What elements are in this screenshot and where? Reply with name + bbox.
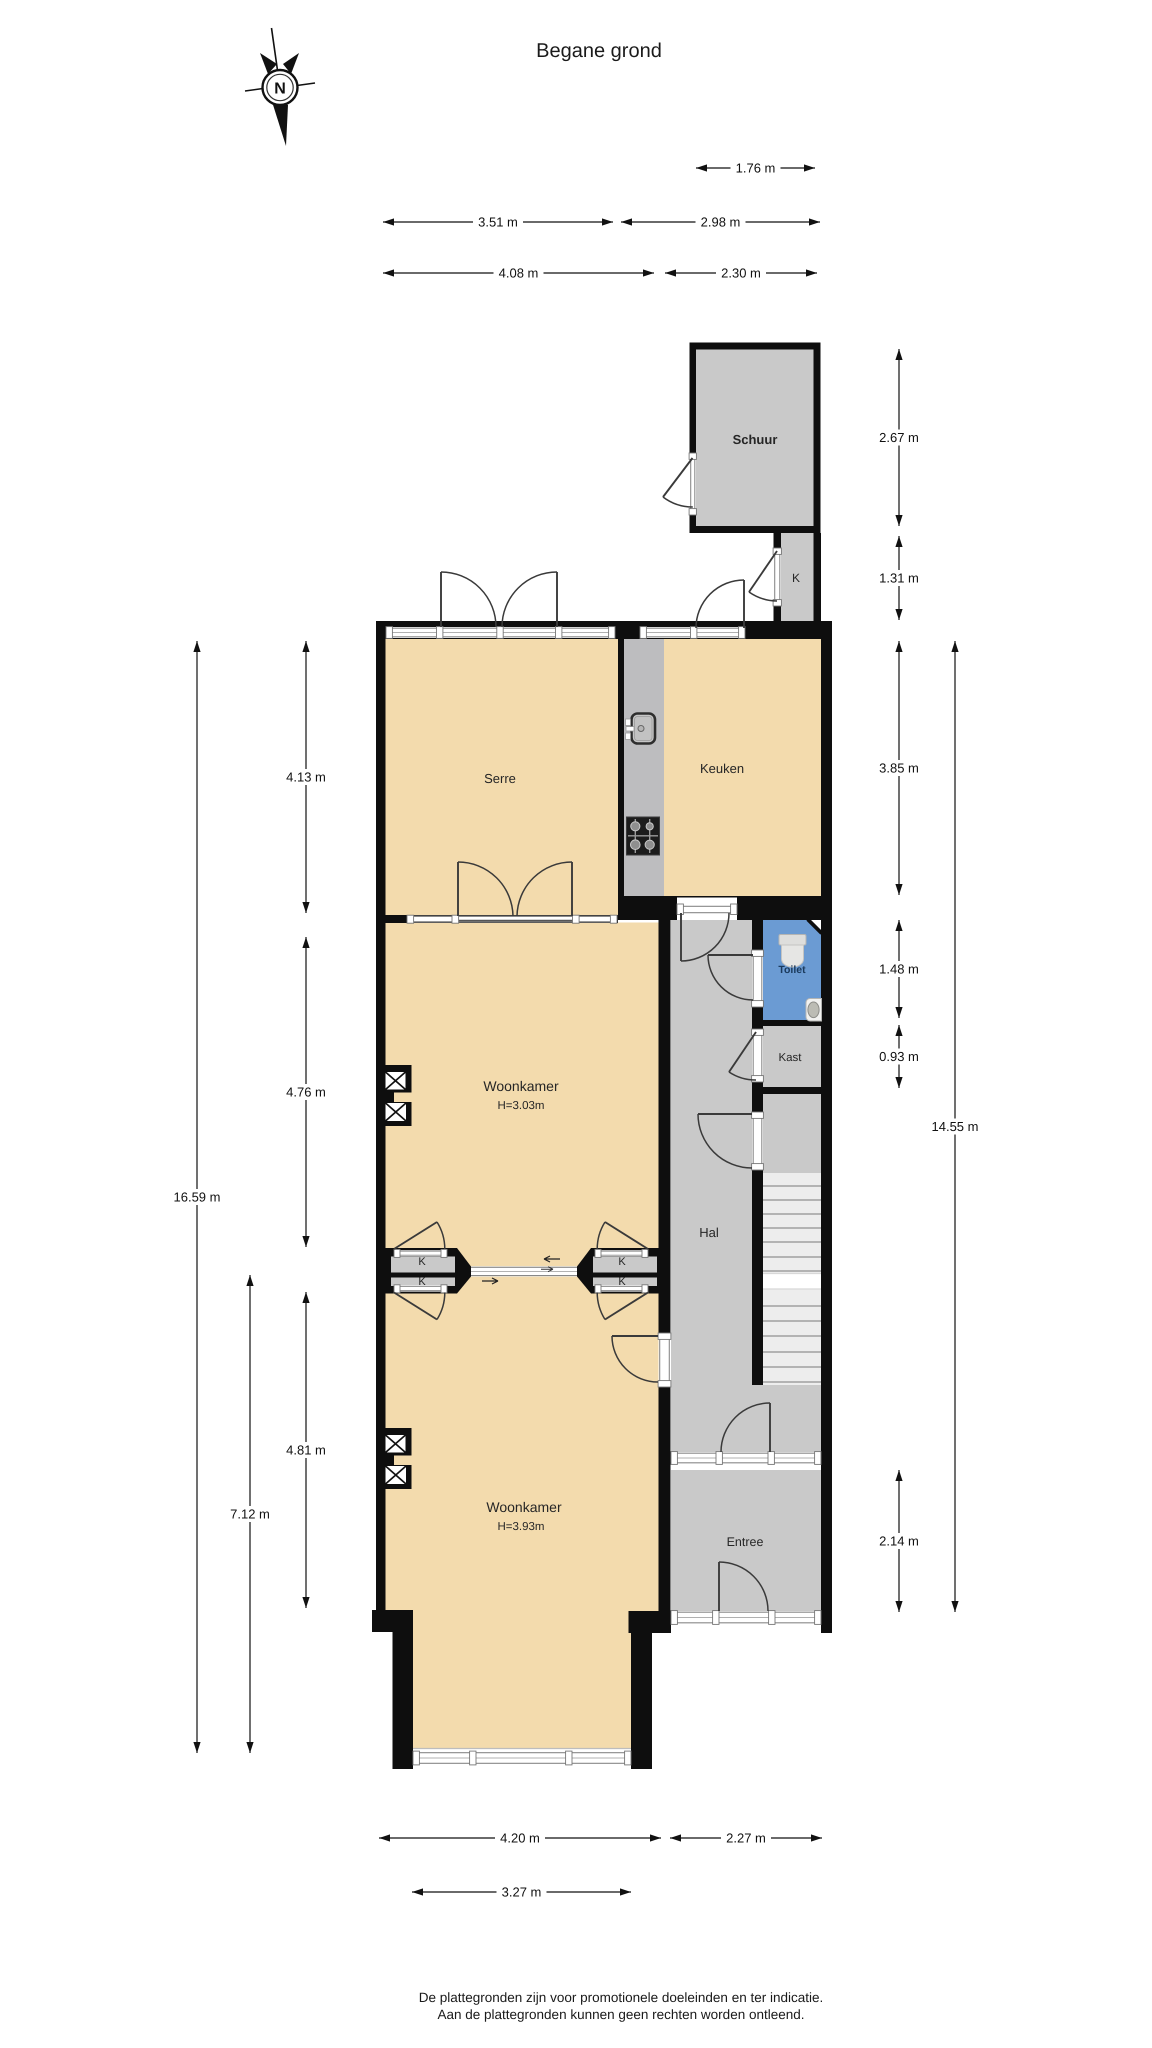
svg-text:H=3.93m: H=3.93m	[498, 1521, 545, 1533]
svg-text:3.85 m: 3.85 m	[879, 761, 919, 776]
svg-text:4.76 m: 4.76 m	[286, 1085, 326, 1100]
svg-text:3.27 m: 3.27 m	[502, 1885, 542, 1900]
svg-text:N: N	[274, 81, 286, 98]
svg-text:K: K	[618, 1256, 626, 1268]
svg-text:2.27 m: 2.27 m	[726, 1831, 766, 1846]
svg-text:H=3.03m: H=3.03m	[498, 1100, 545, 1112]
svg-text:Woonkamer: Woonkamer	[483, 1078, 559, 1094]
svg-text:Schuur: Schuur	[733, 432, 778, 447]
svg-text:4.81 m: 4.81 m	[286, 1443, 326, 1458]
svg-text:3.51 m: 3.51 m	[478, 215, 518, 230]
svg-text:2.98 m: 2.98 m	[701, 215, 741, 230]
svg-text:Toilet: Toilet	[778, 964, 806, 976]
svg-text:Serre: Serre	[484, 771, 516, 786]
svg-text:16.59 m: 16.59 m	[174, 1190, 221, 1205]
svg-text:4.13 m: 4.13 m	[286, 770, 326, 785]
svg-text:Kast: Kast	[778, 1052, 802, 1064]
svg-text:Aan de plattegronden kunnen ge: Aan de plattegronden kunnen geen rechten…	[437, 2007, 804, 2022]
svg-text:1.76 m: 1.76 m	[736, 161, 776, 176]
svg-text:1.48 m: 1.48 m	[879, 962, 919, 977]
svg-text:Woonkamer: Woonkamer	[486, 1499, 562, 1515]
svg-text:14.55 m: 14.55 m	[932, 1119, 979, 1134]
svg-text:Keuken: Keuken	[700, 761, 744, 776]
svg-text:De plattegronden zijn voor pro: De plattegronden zijn voor promotionele …	[419, 1990, 824, 2005]
svg-text:Hal: Hal	[699, 1225, 719, 1240]
svg-text:K: K	[418, 1256, 426, 1268]
svg-text:2.67 m: 2.67 m	[879, 430, 919, 445]
svg-text:1.31 m: 1.31 m	[879, 571, 919, 586]
svg-text:Begane grond: Begane grond	[536, 40, 662, 62]
svg-text:2.14 m: 2.14 m	[879, 1534, 919, 1549]
svg-text:4.08 m: 4.08 m	[499, 266, 539, 281]
svg-text:K: K	[418, 1276, 426, 1288]
svg-text:7.12 m: 7.12 m	[230, 1507, 270, 1522]
svg-text:Entree: Entree	[727, 1535, 764, 1549]
svg-text:0.93 m: 0.93 m	[879, 1049, 919, 1064]
svg-text:K: K	[618, 1276, 626, 1288]
svg-text:K: K	[792, 571, 800, 585]
svg-text:2.30 m: 2.30 m	[721, 266, 761, 281]
svg-text:4.20 m: 4.20 m	[500, 1831, 540, 1846]
